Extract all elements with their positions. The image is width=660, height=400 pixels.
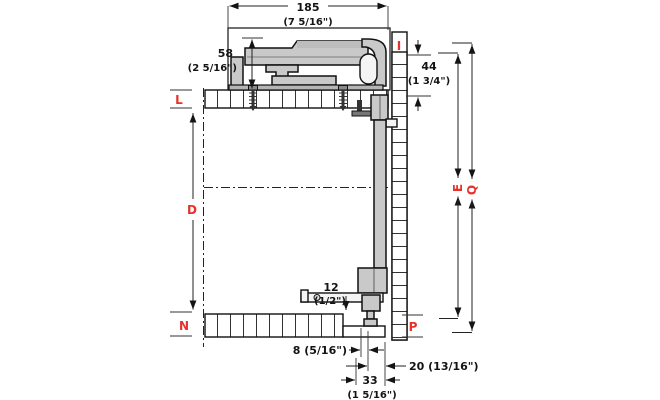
ref-label-Q: Q	[465, 185, 479, 195]
dim-185-mm: 185	[297, 1, 320, 14]
ref-label-L: L	[175, 93, 183, 107]
carriage-base-plate	[272, 76, 336, 85]
dim-12-mm: 12	[323, 281, 338, 294]
runner-roller	[360, 54, 377, 84]
track-column	[374, 120, 386, 268]
ref-label-I: I	[397, 39, 401, 53]
dim-58-mm: 58	[218, 47, 233, 60]
ref-label-N: N	[179, 319, 189, 333]
technical-drawing-canvas: 185 (7 5/16") 58 (2 5/16") 44 (1 3/4") E	[0, 0, 660, 400]
adjuster-bolt-stem	[367, 311, 374, 319]
guide-rail-end-tab	[301, 290, 308, 302]
adjuster-bolt-body	[362, 295, 380, 311]
ref-label-E: E	[451, 184, 465, 192]
dim-44-mm: 44	[421, 60, 437, 73]
fitting-cross-section-svg: 185 (7 5/16") 58 (2 5/16") 44 (1 3/4") E	[0, 0, 660, 400]
dim-33-mm: 33	[362, 374, 377, 387]
track-lower-block	[358, 268, 387, 293]
ref-label-D: D	[187, 203, 197, 217]
door-panel-hatch	[392, 52, 407, 340]
track-side-tab	[386, 119, 397, 127]
adjuster-bolt-foot	[364, 319, 377, 326]
dim-12-inch: (1/2")	[314, 296, 346, 307]
dim-33-inch: (1 5/16")	[347, 390, 396, 400]
dim-185-inch: (7 5/16")	[283, 17, 332, 28]
dim-58-inch: (2 5/16")	[188, 63, 237, 74]
ref-label-P: P	[409, 320, 418, 334]
track-upper-band	[297, 41, 368, 48]
cabinet-bottom-panel	[205, 314, 343, 337]
dim-8-text: 8 (5/16")	[293, 344, 347, 357]
track-top-block	[371, 95, 388, 120]
dim-20-text: 20 (13/16")	[409, 360, 479, 373]
bottom-panel-rebate	[343, 326, 385, 337]
dim-44-inch: (1 3/4")	[408, 76, 450, 87]
